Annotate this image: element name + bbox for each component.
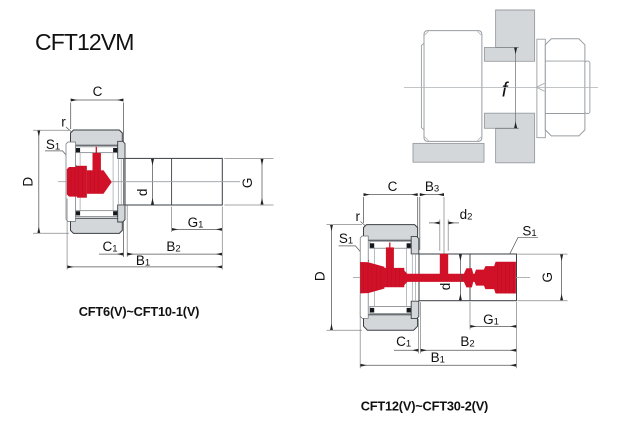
svg-text:S1: S1 (522, 224, 536, 240)
svg-text:B1: B1 (431, 350, 445, 366)
svg-text:CFT12VM: CFT12VM (35, 29, 134, 55)
svg-text:r: r (356, 209, 361, 224)
svg-text:B2: B2 (166, 239, 180, 255)
svg-text:d2: d2 (460, 207, 473, 223)
svg-text:B3: B3 (425, 179, 439, 195)
svg-text:B2: B2 (460, 334, 474, 350)
svg-text:d: d (438, 283, 453, 291)
svg-text:S1: S1 (339, 231, 353, 247)
svg-text:f: f (502, 80, 510, 102)
svg-text:C: C (93, 84, 103, 99)
svg-text:CFT6(V)~CFT10-1(V): CFT6(V)~CFT10-1(V) (79, 304, 199, 319)
svg-text:d: d (135, 189, 150, 197)
svg-text:r: r (61, 115, 66, 130)
svg-text:C1: C1 (102, 239, 117, 255)
svg-text:S1: S1 (46, 137, 60, 153)
svg-text:G: G (540, 272, 555, 283)
svg-text:D: D (21, 177, 36, 187)
svg-text:G1: G1 (483, 312, 499, 328)
svg-text:C: C (388, 179, 398, 194)
svg-text:CFT12(V)~CFT30-2(V): CFT12(V)~CFT30-2(V) (361, 399, 488, 414)
svg-text:G1: G1 (188, 215, 204, 231)
svg-text:C1: C1 (396, 334, 411, 350)
svg-text:D: D (312, 271, 327, 281)
svg-text:B1: B1 (136, 253, 150, 269)
svg-text:G: G (240, 178, 255, 189)
